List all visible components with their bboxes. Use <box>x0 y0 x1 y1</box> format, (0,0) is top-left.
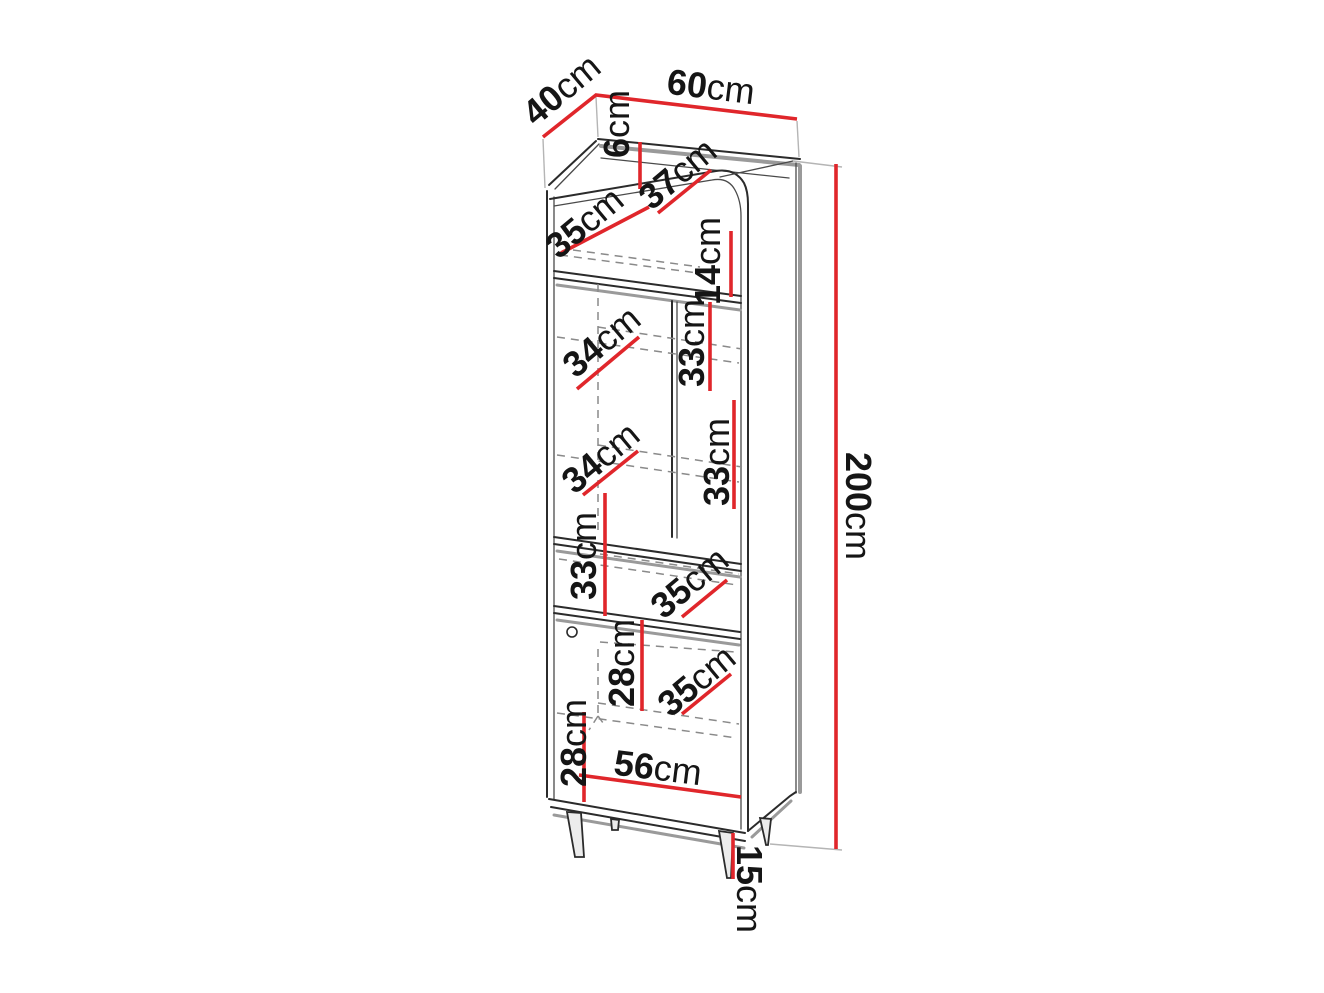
dimension-labels: 40cm 60cm 6cm 35cm 37cm 14cm 34cm 33cm 3… <box>514 45 879 933</box>
dim-label-middle-section-h: 33cm <box>563 512 604 600</box>
dim-label-interior-width: 56cm <box>612 741 704 792</box>
dim-label-niche-height: 14cm <box>687 217 728 305</box>
center-glide <box>611 819 619 830</box>
dim-label-rim-height: 6cm <box>596 90 637 158</box>
dim-label-top-depth: 40cm <box>514 45 608 133</box>
furniture-dimension-diagram: 40cm 60cm 6cm 35cm 37cm 14cm 34cm 33cm 3… <box>0 0 1324 993</box>
back-right-leg <box>760 818 771 845</box>
dim-label-lower-shelf-depth: 35cm <box>649 636 743 724</box>
dim-label-total-height: 200cm <box>839 452 880 560</box>
door-knob <box>567 627 577 637</box>
dim-label-leg-height: 15cm <box>730 845 771 933</box>
dim-label-upper-section-h-1: 33cm <box>671 299 712 387</box>
dim-label-upper-section-h-2: 33cm <box>696 418 737 506</box>
dim-label-lower-section-h-2: 28cm <box>553 699 594 787</box>
diagram-canvas: 40cm 60cm 6cm 35cm 37cm 14cm 34cm 33cm 3… <box>0 0 1324 993</box>
dim-label-lower-section-h-1: 28cm <box>601 619 642 707</box>
front-left-leg <box>567 812 584 857</box>
